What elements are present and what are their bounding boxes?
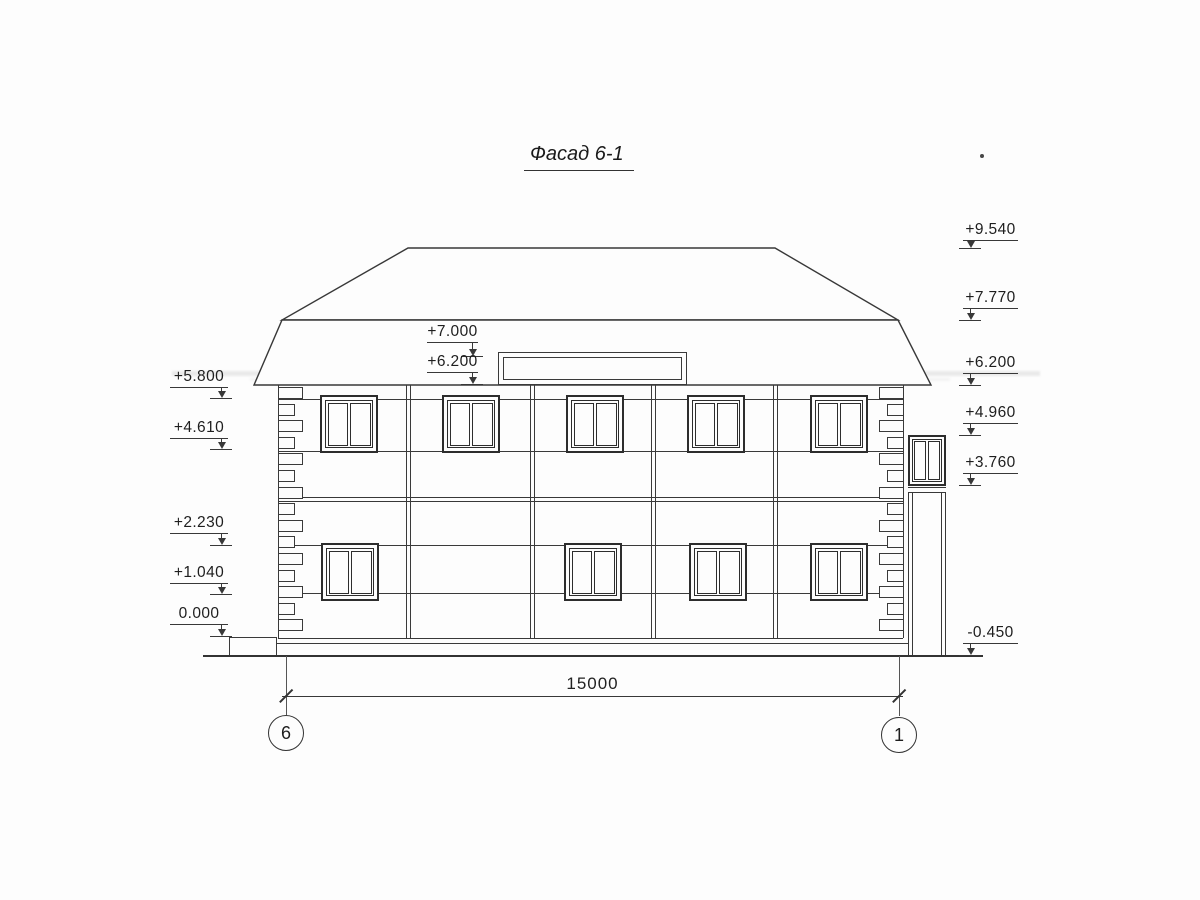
quoin-block-left — [278, 453, 303, 465]
attic-panel — [498, 352, 687, 385]
shaft-window-sash — [914, 441, 926, 480]
elevation-marker-label: +6.200 — [963, 354, 1018, 370]
quoin-block-right — [879, 520, 904, 532]
window — [810, 543, 868, 601]
quoin-block-right — [887, 470, 904, 482]
axis-label: 1 — [894, 725, 904, 746]
window-sash — [572, 551, 593, 594]
shaft-window-sash — [928, 441, 940, 480]
elevation-marker-label: +7.770 — [963, 289, 1018, 305]
window-sash — [719, 551, 740, 594]
quoin-block-right — [879, 553, 904, 565]
window — [687, 395, 745, 453]
plinth-step — [229, 637, 277, 656]
shaft-wall-line — [908, 492, 909, 655]
quoin-block-right — [879, 619, 904, 631]
elevation-marker-line — [170, 438, 228, 439]
dimension-value: 15000 — [286, 674, 899, 694]
quoin-block-right — [879, 586, 904, 598]
elevation-level-tick — [959, 248, 981, 249]
mid-floor-line — [278, 501, 903, 502]
window-sash — [450, 403, 471, 446]
down-arrow-icon — [967, 241, 975, 248]
elevation-level-tick — [210, 398, 232, 399]
window-sash — [697, 551, 718, 594]
ground-line — [203, 655, 983, 657]
dimension-line — [282, 696, 903, 697]
quoin-block-left — [278, 387, 303, 399]
quoin-block-left — [278, 536, 295, 548]
window-sash — [695, 403, 716, 446]
shaft-wall-line — [912, 492, 913, 655]
shaft-window — [908, 435, 946, 486]
quoin-block-left — [278, 487, 303, 499]
window-frame — [694, 548, 742, 596]
window-sash — [818, 403, 839, 446]
quoin-block-right — [887, 603, 904, 615]
quoin-block-right — [879, 487, 904, 499]
quoin-block-left — [278, 470, 295, 482]
window-frame — [569, 548, 617, 596]
window-sash — [818, 551, 839, 594]
elevation-marker-label: -0.450 — [963, 624, 1018, 640]
down-arrow-icon — [469, 377, 477, 384]
elevation-marker-line — [170, 533, 228, 534]
mid-floor-line — [278, 497, 903, 498]
window-frame — [325, 400, 373, 448]
quoin-block-left — [278, 420, 303, 432]
quoin-block-left — [278, 520, 303, 532]
elevation-level-tick — [959, 435, 981, 436]
quoin-block-left — [278, 619, 303, 631]
quoin-block-right — [879, 453, 904, 465]
drawing-page: Фасад 6-1 15000 6 1 — [0, 0, 1200, 900]
window — [564, 543, 622, 601]
shaft-wall-line — [941, 492, 942, 655]
quoin-block-right — [887, 570, 904, 582]
axis-bubble-6: 6 — [268, 715, 304, 751]
quoin-block-left — [278, 503, 295, 515]
shaft-wall-line — [945, 492, 946, 655]
window — [810, 395, 868, 453]
window-sash — [840, 403, 861, 446]
elevation-marker-label: 0.000 — [170, 605, 228, 621]
elevation-level-tick — [210, 545, 232, 546]
window-sash — [717, 403, 738, 446]
elevation-marker-label: +4.960 — [963, 404, 1018, 420]
quoin-block-left — [278, 603, 295, 615]
down-arrow-icon — [218, 629, 226, 636]
elevation-marker-label: +7.000 — [427, 323, 478, 339]
elevation-marker-label: +1.040 — [170, 564, 228, 580]
window-sash — [350, 403, 371, 446]
quoin-block-left — [278, 404, 295, 416]
elevation-level-tick — [210, 636, 232, 637]
quoin-block-right — [879, 387, 904, 399]
elevation-marker-label: +6.200 — [427, 353, 478, 369]
window-frame — [571, 400, 619, 448]
axis-bubble-1: 1 — [881, 717, 917, 753]
quoin-block-right — [887, 437, 904, 449]
elevation-level-tick — [959, 320, 981, 321]
down-arrow-icon — [967, 478, 975, 485]
pilaster-line — [406, 385, 411, 638]
window-sash — [594, 551, 615, 594]
down-arrow-icon — [218, 538, 226, 545]
window-frame — [815, 548, 863, 596]
window — [442, 395, 500, 453]
elevation-level-tick — [959, 485, 981, 486]
elevation-marker-line — [170, 583, 228, 584]
window — [566, 395, 624, 453]
window — [321, 543, 379, 601]
window-sash — [329, 551, 350, 594]
elevation-level-tick — [461, 384, 483, 385]
pilaster-line — [651, 385, 656, 638]
window-sash — [840, 551, 861, 594]
down-arrow-icon — [967, 428, 975, 435]
elevation-marker-label: +2.230 — [170, 514, 228, 530]
elevation-marker-line — [427, 372, 478, 373]
down-arrow-icon — [218, 442, 226, 449]
quoin-block-left — [278, 553, 303, 565]
quoin-block-right — [887, 404, 904, 416]
elevation-level-tick — [210, 594, 232, 595]
elevation-marker-label: +9.540 — [963, 221, 1018, 237]
quoin-block-right — [887, 536, 904, 548]
window-sash — [472, 403, 493, 446]
window-frame — [815, 400, 863, 448]
down-arrow-icon — [967, 313, 975, 320]
shaft-window-frame — [912, 439, 942, 482]
pilaster-line — [530, 385, 535, 638]
down-arrow-icon — [967, 648, 975, 655]
window-frame — [692, 400, 740, 448]
elevation-marker-line — [170, 387, 228, 388]
attic-panel-inner — [503, 357, 682, 380]
elevation-level-tick — [959, 385, 981, 386]
quoin-block-left — [278, 586, 303, 598]
window — [689, 543, 747, 601]
elevation-level-tick — [959, 655, 981, 656]
axis-label: 6 — [281, 723, 291, 744]
window — [320, 395, 378, 453]
quoin-block-left — [278, 570, 295, 582]
window-sash — [596, 403, 617, 446]
window-frame — [326, 548, 374, 596]
down-arrow-icon — [218, 391, 226, 398]
quoin-block-right — [887, 503, 904, 515]
shaft-band-line — [908, 487, 946, 488]
pilaster-line — [773, 385, 778, 638]
roof-hip — [282, 248, 898, 320]
elevation-marker-line — [427, 342, 478, 343]
down-arrow-icon — [218, 587, 226, 594]
wall-bottom-line — [278, 638, 903, 639]
window-sash — [351, 551, 372, 594]
window-frame — [447, 400, 495, 448]
elevation-marker-label: +3.760 — [963, 454, 1018, 470]
quoin-block-left — [278, 437, 295, 449]
elevation-marker-label: +5.800 — [170, 368, 228, 384]
elevation-level-tick — [210, 449, 232, 450]
elevation-marker-label: +4.610 — [170, 419, 228, 435]
quoin-block-right — [879, 420, 904, 432]
window-sash — [574, 403, 595, 446]
down-arrow-icon — [967, 378, 975, 385]
window-sash — [328, 403, 349, 446]
axis-line-1 — [899, 656, 900, 716]
elevation-marker-line — [170, 624, 228, 625]
